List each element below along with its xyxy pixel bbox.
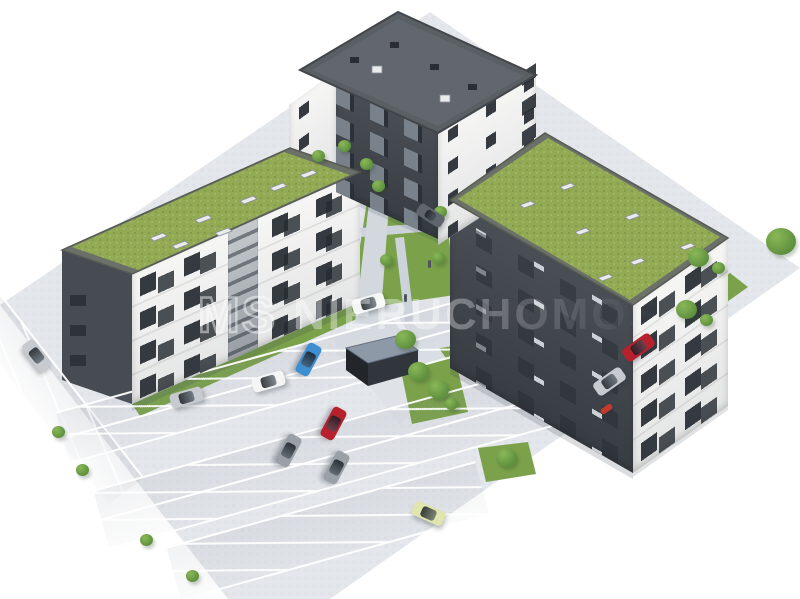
building-west-green-roof [72,152,350,270]
bush [52,426,65,438]
pedestrian [428,260,431,268]
roof-layer [0,0,800,599]
bush [186,570,199,582]
bush [712,262,725,274]
pedestrian [404,294,407,302]
tree [408,362,429,381]
tree [395,330,416,349]
bush [140,534,153,546]
tree [766,228,796,255]
tree [496,448,517,467]
tree [445,398,458,410]
tree [432,252,445,264]
tree [380,254,393,266]
tree [428,380,449,399]
tree [676,300,697,319]
tree [338,140,351,152]
tree [372,180,385,192]
bush [76,464,89,476]
bush [700,314,713,326]
tree [312,150,325,162]
building-east-green-roof [458,138,720,300]
estate-visualization: MS NIERUCHOMOŚCI [0,0,800,599]
tree [688,248,709,267]
tree [360,158,373,170]
building-north-roof-panel [312,19,524,126]
